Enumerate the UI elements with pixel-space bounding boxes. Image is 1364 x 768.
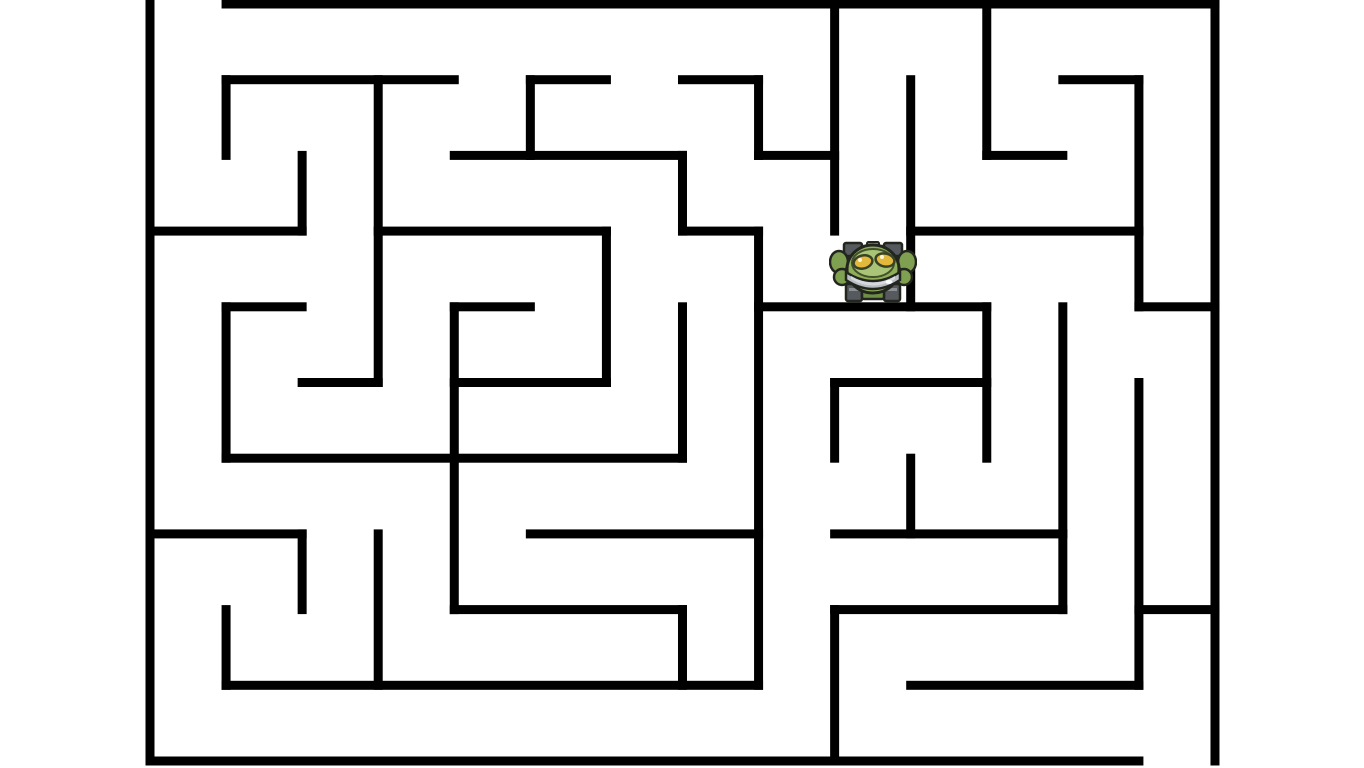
maze-wall	[146, 0, 155, 766]
maze-wall	[222, 302, 307, 311]
maze-wall	[754, 227, 763, 690]
maze-wall	[146, 757, 1144, 766]
maze-wall	[830, 378, 839, 463]
maze-wall	[146, 227, 307, 236]
maze-stage	[0, 0, 1364, 768]
maze-wall	[678, 605, 687, 690]
maze-wall	[906, 227, 1143, 236]
maze-wall	[830, 529, 1067, 538]
maze-wall	[526, 529, 763, 538]
maze-wall	[754, 75, 763, 160]
maze-wall	[830, 605, 1067, 614]
maze-wall	[298, 529, 307, 614]
maze-wall	[1134, 75, 1143, 311]
maze-wall	[450, 151, 687, 160]
maze-wall	[526, 75, 611, 84]
maze-wall	[982, 0, 991, 160]
maze-wall	[450, 605, 687, 614]
maze-wall	[374, 529, 383, 689]
maze-wall	[1134, 378, 1143, 690]
maze-wall	[602, 227, 611, 387]
maze-wall	[222, 75, 231, 160]
maze-wall	[450, 302, 459, 614]
maze-wall	[830, 0, 839, 236]
maze-wall	[830, 605, 839, 765]
maze-wall	[222, 75, 459, 84]
maze-canvas[interactable]	[0, 0, 1364, 768]
maze-wall	[298, 378, 383, 387]
maze-wall	[678, 302, 687, 462]
maze-wall	[830, 378, 991, 387]
maze-wall	[450, 378, 611, 387]
maze-wall	[1058, 75, 1143, 84]
player-robot[interactable]	[829, 241, 917, 304]
maze-wall	[754, 151, 839, 160]
maze-wall	[982, 302, 991, 462]
maze-wall	[678, 75, 763, 84]
maze-wall	[906, 454, 915, 539]
maze-wall	[146, 529, 307, 538]
maze-wall	[906, 681, 1143, 690]
maze-wall	[1210, 0, 1219, 766]
maze-wall	[1058, 302, 1067, 614]
maze-wall	[1134, 302, 1219, 311]
maze-wall	[1134, 605, 1219, 614]
maze-wall	[374, 227, 611, 236]
maze-wall	[526, 75, 535, 160]
maze-wall	[982, 151, 1067, 160]
maze-wall	[222, 302, 231, 462]
maze-wall	[450, 302, 535, 311]
maze-wall	[298, 151, 307, 236]
maze-wall	[374, 75, 383, 387]
maze-wall	[222, 0, 1220, 9]
maze-wall	[678, 151, 687, 236]
maze-wall	[222, 605, 231, 690]
maze-wall	[678, 227, 763, 236]
robot-crab-icon	[829, 241, 917, 304]
